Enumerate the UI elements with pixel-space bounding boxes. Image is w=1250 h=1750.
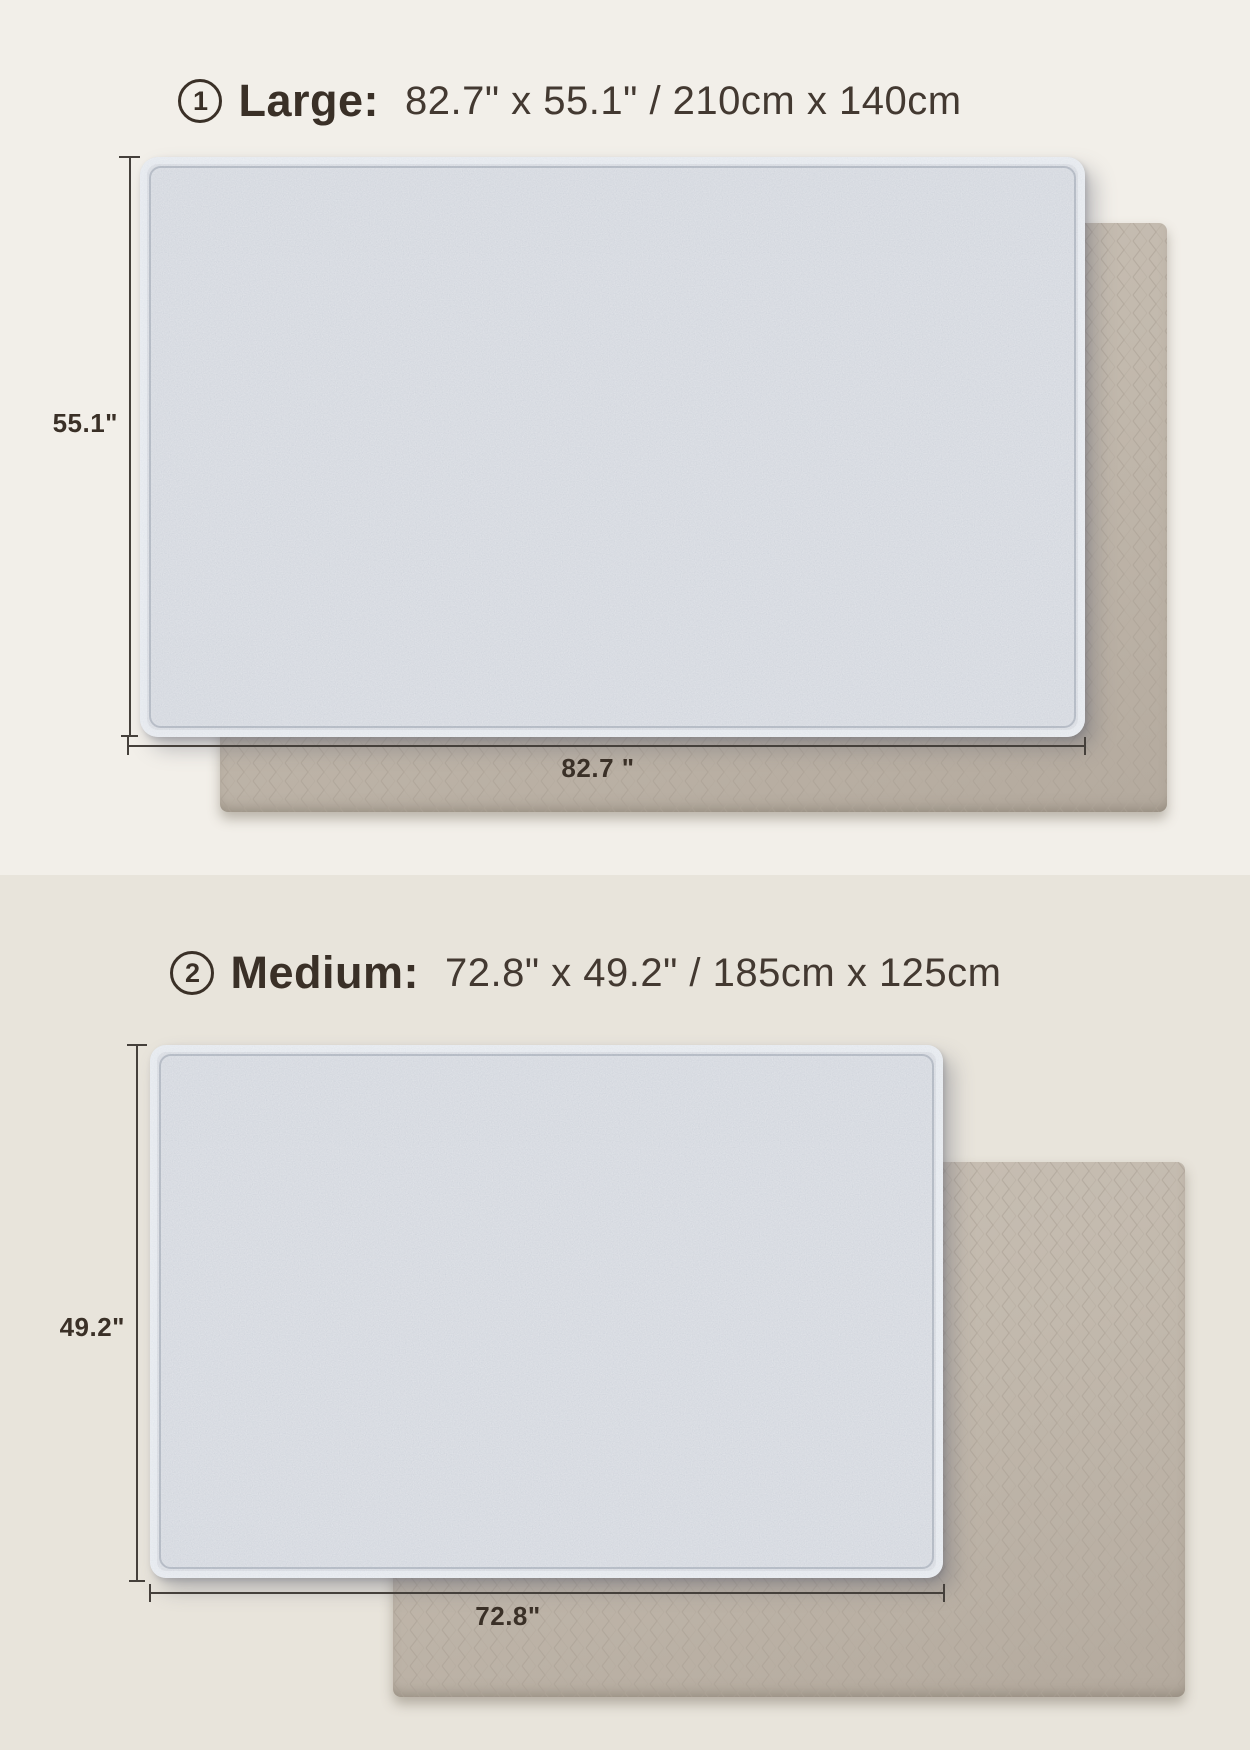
medium-title: 2 Medium: 72.8" x 49.2" / 185cm x 125cm <box>0 942 1172 1004</box>
circled-number-text: 2 <box>185 960 200 987</box>
size-name: Large: <box>238 75 379 127</box>
circled-number-text: 1 <box>193 88 208 115</box>
dimension-tick <box>129 1580 145 1582</box>
large-title: 1 Large: 82.7" x 55.1" / 210cm x 140cm <box>0 70 1140 132</box>
dimension-tick <box>121 735 138 737</box>
width-dimension-line <box>128 745 1086 747</box>
size-dimensions: 82.7" x 55.1" / 210cm x 140cm <box>405 79 962 124</box>
dimension-tick <box>127 1044 147 1046</box>
mat-hem-stitch <box>159 1054 934 1569</box>
circled-number-icon: 2 <box>170 951 214 995</box>
width-dimension-label: 82.7 " <box>478 753 718 783</box>
size-comparison-graphic: 1 Large: 82.7" x 55.1" / 210cm x 140cm 5… <box>0 0 1250 1750</box>
play-mat-front-felt <box>140 157 1085 737</box>
dimension-tick <box>943 1584 945 1602</box>
size-name: Medium: <box>230 947 419 999</box>
dimension-tick <box>1084 737 1086 755</box>
mat-hem-stitch <box>149 166 1076 728</box>
width-dimension-line <box>150 1592 945 1594</box>
height-dimension-label: 55.1" <box>18 408 118 438</box>
height-dimension-line <box>129 157 131 737</box>
height-dimension-line <box>136 1045 138 1582</box>
dimension-tick <box>149 1584 151 1602</box>
play-mat-front-felt <box>150 1045 943 1578</box>
width-dimension-label: 72.8" <box>388 1601 628 1631</box>
dimension-tick <box>119 156 140 158</box>
circled-number-icon: 1 <box>178 79 222 123</box>
height-dimension-label: 49.2" <box>25 1312 125 1342</box>
size-dimensions: 72.8" x 49.2" / 185cm x 125cm <box>445 951 1002 996</box>
dimension-tick <box>127 737 129 755</box>
